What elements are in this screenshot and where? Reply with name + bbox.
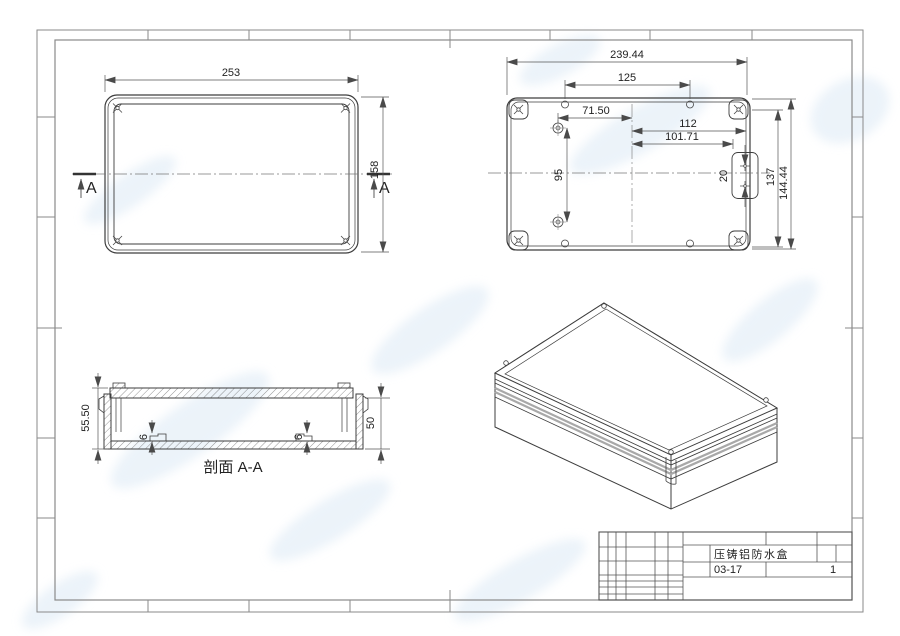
bottom-section — [111, 441, 356, 449]
inside-view-dimensions — [507, 57, 796, 249]
right-wall-section — [356, 394, 363, 449]
dim-height-158: 158 — [369, 161, 381, 179]
dim-overall-height: 144.44 — [778, 166, 790, 200]
lid-section — [110, 388, 353, 398]
watermark — [14, 25, 900, 636]
top-view: A A 253 158 — [72, 67, 392, 253]
dim-section-inner-height: 50 — [365, 417, 377, 429]
revision-grid — [599, 532, 683, 600]
dim-center-to-wall: 112 — [679, 118, 697, 130]
dim-boss-left: 6 — [138, 434, 150, 440]
drawing-sheet: A A 253 158 — [0, 0, 900, 636]
dim-hole-spacing: 125 — [618, 72, 636, 84]
section-label-right: A — [379, 180, 390, 197]
dim-boss-spacing: 95 — [553, 169, 565, 181]
part-name: 压铸铝防水盒 — [714, 547, 789, 561]
left-wall-section — [104, 394, 111, 449]
plate-hole-marks — [740, 161, 750, 191]
section-label-left: A — [86, 180, 97, 197]
dim-plate-holes: 20 — [718, 170, 730, 182]
dim-overall-width: 239.44 — [610, 49, 644, 61]
dim-center-to-plate: 101.71 — [665, 131, 699, 143]
left-flange — [99, 396, 104, 413]
title-block: 压铸铝防水盒 03-17 1 — [599, 532, 852, 600]
drawing-code: 03-17 — [714, 564, 742, 576]
dim-width-253: 253 — [222, 67, 240, 79]
dim-boss-to-center: 71.50 — [582, 105, 610, 117]
right-flange — [363, 396, 368, 413]
dim-boss-right: 6 — [293, 434, 305, 440]
cad-drawing: A A 253 158 — [0, 0, 900, 636]
dim-section-overall-height: 55.50 — [80, 404, 92, 432]
dim-inner-height: 137 — [765, 168, 777, 186]
sheet-number: 1 — [830, 564, 836, 576]
section-view-label: 剖面 A-A — [203, 459, 262, 476]
